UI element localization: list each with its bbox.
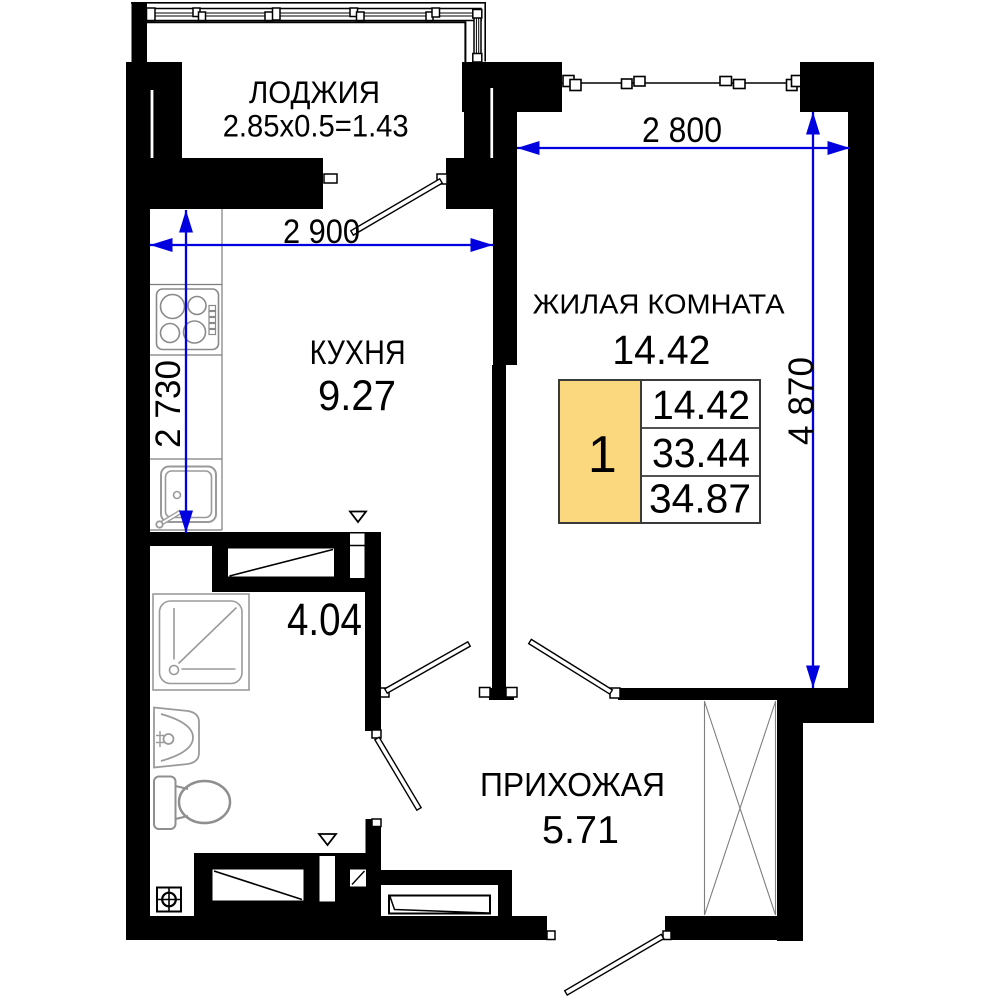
svg-text:ПРИХОЖАЯ: ПРИХОЖАЯ <box>480 766 665 803</box>
svg-text:4 870: 4 870 <box>782 357 821 445</box>
svg-text:КУХНЯ: КУХНЯ <box>310 334 406 372</box>
svg-text:ЛОДЖИЯ: ЛОДЖИЯ <box>249 74 380 110</box>
svg-text:34.87: 34.87 <box>649 476 751 522</box>
svg-text:14.42: 14.42 <box>612 327 710 373</box>
svg-text:2 730: 2 730 <box>149 360 188 448</box>
svg-text:2 900: 2 900 <box>283 213 360 251</box>
svg-text:ЖИЛАЯ КОМНАТА: ЖИЛАЯ КОМНАТА <box>533 289 786 320</box>
svg-text:4.04: 4.04 <box>287 594 362 645</box>
svg-text:2.85x0.5=1.43: 2.85x0.5=1.43 <box>223 108 409 144</box>
svg-text:2 800: 2 800 <box>642 111 722 150</box>
svg-text:9.27: 9.27 <box>318 373 396 420</box>
svg-text:1: 1 <box>588 426 617 484</box>
svg-text:14.42: 14.42 <box>652 382 750 428</box>
svg-text:5.71: 5.71 <box>542 809 619 852</box>
svg-text:33.44: 33.44 <box>652 430 750 476</box>
